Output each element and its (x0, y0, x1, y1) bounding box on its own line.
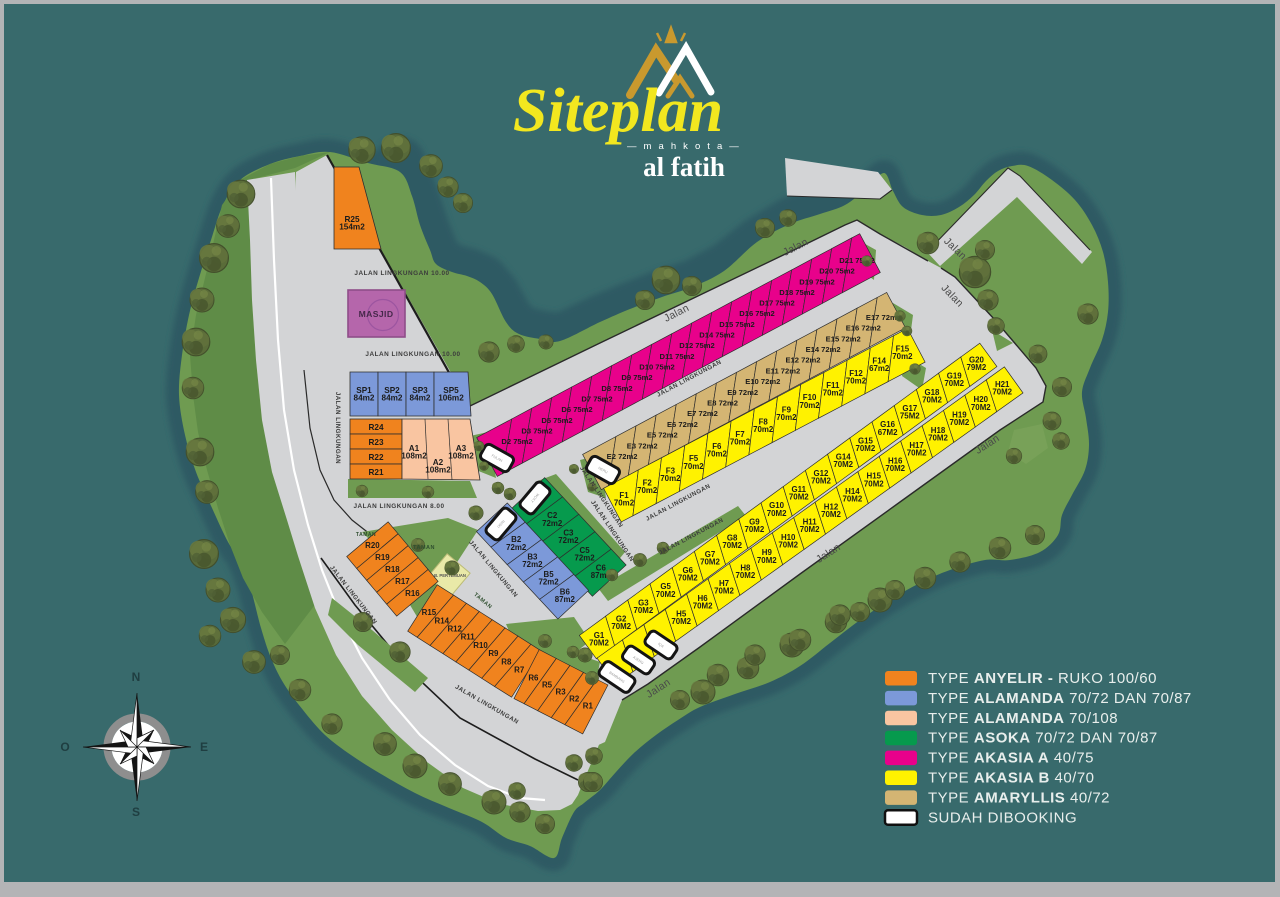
svg-text:D18 75m2: D18 75m2 (779, 288, 814, 297)
svg-text:TYPE ALAMANDA 70/108: TYPE ALAMANDA 70/108 (928, 710, 1118, 727)
svg-text:— m a h k o t a —: — m a h k o t a — (627, 141, 741, 152)
svg-text:D8 75m2: D8 75m2 (601, 384, 632, 393)
svg-text:SP284m2: SP284m2 (382, 386, 403, 403)
svg-text:S: S (132, 805, 140, 819)
svg-text:Siteplan: Siteplan (513, 77, 723, 145)
svg-text:D12 75m2: D12 75m2 (679, 341, 714, 350)
svg-text:E9 72m2: E9 72m2 (727, 388, 758, 397)
svg-text:D14 75m2: D14 75m2 (699, 331, 734, 340)
svg-text:D10 75m2: D10 75m2 (639, 363, 674, 372)
svg-text:E7 72m2: E7 72m2 (687, 409, 718, 418)
svg-text:R17: R17 (395, 577, 410, 586)
svg-text:D11 75m2: D11 75m2 (659, 352, 694, 361)
svg-text:R23: R23 (368, 438, 383, 447)
svg-text:TYPE ANYELIR - RUKO 100/60: TYPE ANYELIR - RUKO 100/60 (928, 670, 1157, 687)
svg-text:R8: R8 (501, 657, 512, 666)
svg-text:E: E (200, 740, 208, 754)
svg-text:JALAN LINGKUNGAN: JALAN LINGKUNGAN (334, 392, 341, 464)
svg-text:TYPE AMARYLLIS 40/72: TYPE AMARYLLIS 40/72 (928, 789, 1110, 806)
svg-text:TAMAN: TAMAN (356, 532, 376, 538)
svg-text:D19 75m2: D19 75m2 (799, 277, 834, 286)
svg-text:D16 75m2: D16 75m2 (739, 309, 774, 318)
svg-text:D5 75m2: D5 75m2 (541, 416, 572, 425)
svg-text:E16 72m2: E16 72m2 (846, 324, 881, 333)
svg-text:E6 72m2: E6 72m2 (667, 420, 698, 429)
svg-text:R16: R16 (405, 589, 420, 598)
svg-text:R22: R22 (368, 453, 383, 462)
svg-text:R24: R24 (368, 423, 383, 432)
svg-text:D7 75m2: D7 75m2 (581, 394, 612, 403)
svg-text:JALAN LINGKUNGAN 8.00: JALAN LINGKUNGAN 8.00 (353, 503, 444, 510)
svg-text:D17 75m2: D17 75m2 (759, 299, 794, 308)
svg-text:R19: R19 (375, 553, 390, 562)
svg-text:JALAN LINGKUNGAN 10.00: JALAN LINGKUNGAN 10.00 (365, 351, 460, 358)
svg-text:G1470M2: G1470M2 (833, 453, 853, 470)
svg-text:SP184m2: SP184m2 (354, 386, 375, 403)
svg-text:R6: R6 (528, 674, 539, 683)
svg-text:G1870M2: G1870M2 (922, 388, 942, 405)
svg-text:E10 72m2: E10 72m2 (745, 377, 780, 386)
svg-text:TYPE AKASIA B 40/70: TYPE AKASIA B 40/70 (928, 770, 1095, 787)
svg-text:G1775M2: G1775M2 (900, 404, 920, 421)
svg-text:TYPE ASOKA 70/72 DAN 70/87: TYPE ASOKA 70/72 DAN 70/87 (928, 730, 1158, 747)
svg-text:SP384m2: SP384m2 (410, 386, 431, 403)
svg-text:R1: R1 (583, 702, 594, 711)
svg-text:SUDAH DIBOOKING: SUDAH DIBOOKING (928, 809, 1077, 826)
svg-text:G1667M2: G1667M2 (878, 420, 898, 437)
svg-text:E11 72m2: E11 72m2 (766, 366, 801, 375)
svg-text:TAMAN: TAMAN (413, 545, 435, 551)
svg-text:D3 75m2: D3 75m2 (521, 426, 552, 435)
svg-text:O: O (60, 740, 69, 754)
svg-text:E2 72m2: E2 72m2 (607, 452, 638, 461)
svg-text:D6 75m2: D6 75m2 (561, 405, 592, 414)
svg-text:R20: R20 (365, 541, 380, 550)
svg-text:D2 75m2: D2 75m2 (501, 437, 532, 446)
svg-text:G1270M2: G1270M2 (811, 469, 831, 486)
svg-text:D9 75m2: D9 75m2 (621, 373, 652, 382)
svg-text:G1970M2: G1970M2 (944, 372, 964, 389)
svg-text:D20 75m2: D20 75m2 (819, 267, 854, 276)
svg-text:E5 72m2: E5 72m2 (647, 431, 678, 440)
svg-text:D15 75m2: D15 75m2 (719, 320, 754, 329)
svg-text:R9: R9 (488, 649, 499, 658)
svg-text:E15 72m2: E15 72m2 (826, 334, 861, 343)
svg-text:E12 72m2: E12 72m2 (785, 356, 820, 365)
svg-text:G1070M2: G1070M2 (767, 501, 787, 518)
svg-text:E3 72m2: E3 72m2 (627, 441, 658, 450)
svg-text:G2079M2: G2079M2 (967, 355, 987, 372)
svg-text:TYPE ALAMANDA 70/72 DAN 70/: TYPE ALAMANDA 70/72 DAN 70/87 (928, 690, 1192, 707)
svg-text:R18: R18 (385, 565, 400, 574)
svg-text:R21: R21 (368, 468, 383, 477)
svg-text:E8 72m2: E8 72m2 (707, 399, 738, 408)
svg-text:G1570M2: G1570M2 (856, 436, 876, 453)
svg-text:R3: R3 (556, 688, 567, 697)
svg-text:R7: R7 (514, 666, 525, 675)
svg-text:TYPE AKASIA A 40/75: TYPE AKASIA A 40/75 (928, 750, 1094, 767)
svg-text:N: N (132, 670, 141, 684)
svg-text:al fatih: al fatih (643, 152, 725, 182)
svg-text:R5: R5 (542, 681, 553, 690)
svg-text:E14 72m2: E14 72m2 (806, 345, 841, 354)
svg-text:R10: R10 (473, 641, 488, 650)
svg-text:MASJID: MASJID (359, 309, 394, 319)
svg-text:R2: R2 (569, 695, 580, 704)
svg-text:JALAN LINGKUNGAN 10.00: JALAN LINGKUNGAN 10.00 (354, 270, 449, 277)
